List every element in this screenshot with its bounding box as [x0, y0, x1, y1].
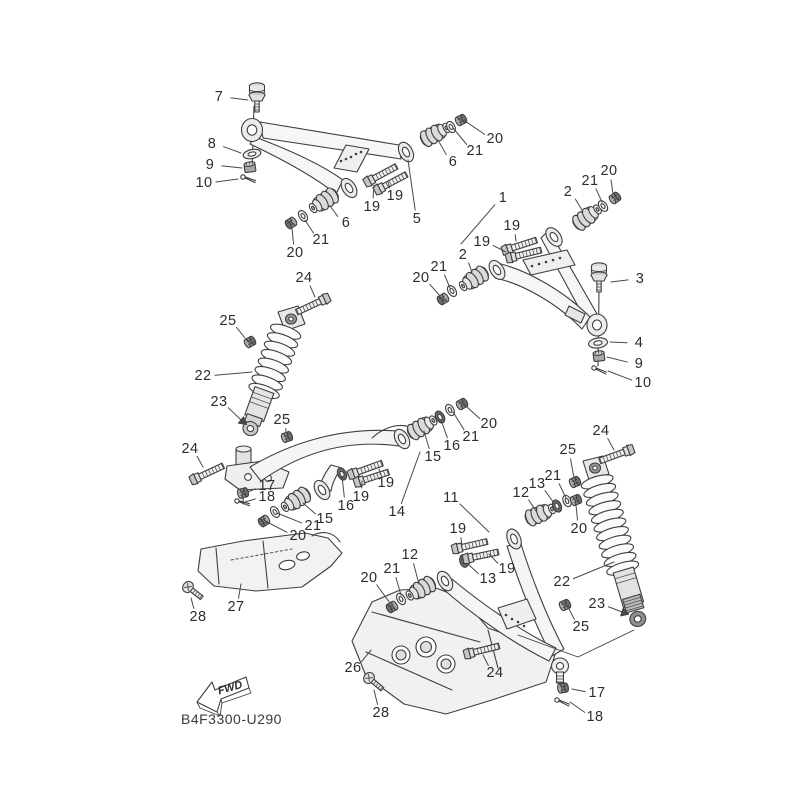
skid-plate-left	[180, 533, 342, 603]
nut-part-20	[257, 514, 271, 528]
leader-line	[453, 128, 467, 144]
leader-line	[466, 406, 480, 418]
castle-nut-part-9	[593, 350, 605, 361]
leader-line	[611, 280, 628, 282]
bolt-part-24	[188, 461, 225, 486]
nut-part-20	[608, 191, 622, 205]
leader-line	[330, 206, 338, 216]
leader-line	[277, 513, 302, 523]
coil-spring	[580, 472, 656, 631]
nut-part-20	[454, 113, 468, 126]
leader-line	[568, 607, 574, 619]
leader-line	[197, 456, 203, 467]
leader-line	[515, 235, 516, 241]
leader-line	[236, 327, 245, 338]
leader-line	[401, 452, 420, 504]
leader-line	[267, 522, 287, 532]
upper-arm-right-assembly	[436, 191, 622, 374]
parts-diagram-page: FWD 789102021620212191195619211920221202…	[0, 0, 800, 800]
leader-line	[216, 179, 238, 182]
leader-line	[570, 702, 585, 712]
leader-line	[460, 504, 489, 532]
nut-part-17	[557, 683, 569, 694]
leader-line	[461, 205, 495, 244]
bolt-part-24	[294, 292, 331, 317]
cotter-pin-part-18	[554, 697, 570, 706]
leader-line	[222, 166, 242, 168]
diagram-artwork: FWD	[0, 0, 800, 800]
washer-part-21	[297, 209, 310, 223]
bushing-part-2	[456, 264, 491, 295]
cotter-pin-part-10	[591, 365, 607, 374]
arm-eye	[395, 140, 416, 165]
leader-line	[575, 199, 582, 210]
leader-line	[596, 189, 602, 202]
leader-line	[438, 140, 446, 155]
leader-line	[608, 371, 632, 380]
leader-line	[607, 357, 627, 362]
leader-line	[465, 121, 485, 134]
leader-line	[430, 284, 440, 296]
cotter-pin-part-18	[234, 499, 250, 506]
leader-line	[468, 564, 478, 574]
seal-washer-part-8	[242, 148, 261, 161]
castle-nut-part-9	[244, 161, 256, 173]
leader-line	[215, 372, 252, 375]
leader-line	[469, 263, 472, 272]
leader-line	[292, 228, 294, 244]
ball-joint-part-3	[591, 263, 607, 292]
bolt-part-24	[598, 444, 636, 466]
leader-line	[305, 220, 314, 233]
leader-line	[223, 147, 241, 153]
washer-part-4	[588, 337, 608, 350]
upper-arm-left-assembly	[240, 83, 468, 230]
ball-joint-part-7	[249, 83, 265, 112]
nut-part-20	[455, 397, 469, 410]
leader-line	[441, 420, 447, 438]
bushing-part-15	[278, 485, 313, 516]
leader-line	[231, 98, 248, 100]
leader-line	[453, 412, 464, 430]
leader-line	[414, 564, 419, 584]
cotter-pin-part-10	[240, 174, 256, 182]
leader-line	[608, 607, 622, 612]
leader-line	[571, 459, 574, 478]
leader-line	[310, 286, 315, 297]
nut-part-25	[243, 335, 257, 348]
leader-line	[445, 275, 450, 288]
leader-line	[559, 484, 566, 498]
shock-absorber-left	[233, 292, 332, 443]
washer-part-21	[269, 505, 282, 519]
leader-line	[608, 438, 614, 450]
lower-arm-left-assembly	[188, 397, 469, 527]
leader-line	[545, 491, 554, 503]
leader-line	[611, 180, 613, 194]
leader-line	[576, 505, 578, 520]
leader-line	[374, 690, 378, 704]
leader-line	[191, 598, 194, 609]
screw-part-28	[180, 579, 205, 602]
leader-line	[245, 499, 255, 502]
leader-line	[303, 503, 315, 514]
leader-line	[572, 689, 585, 692]
leader-line	[408, 160, 415, 210]
diagram-code: B4F3300-U290	[181, 711, 282, 727]
leader-line	[228, 408, 241, 420]
leader-line	[610, 342, 627, 343]
nut-part-20	[284, 216, 298, 230]
nut-part-25	[568, 476, 582, 489]
nut-part-25	[280, 431, 293, 443]
nut-part-17	[237, 487, 250, 499]
